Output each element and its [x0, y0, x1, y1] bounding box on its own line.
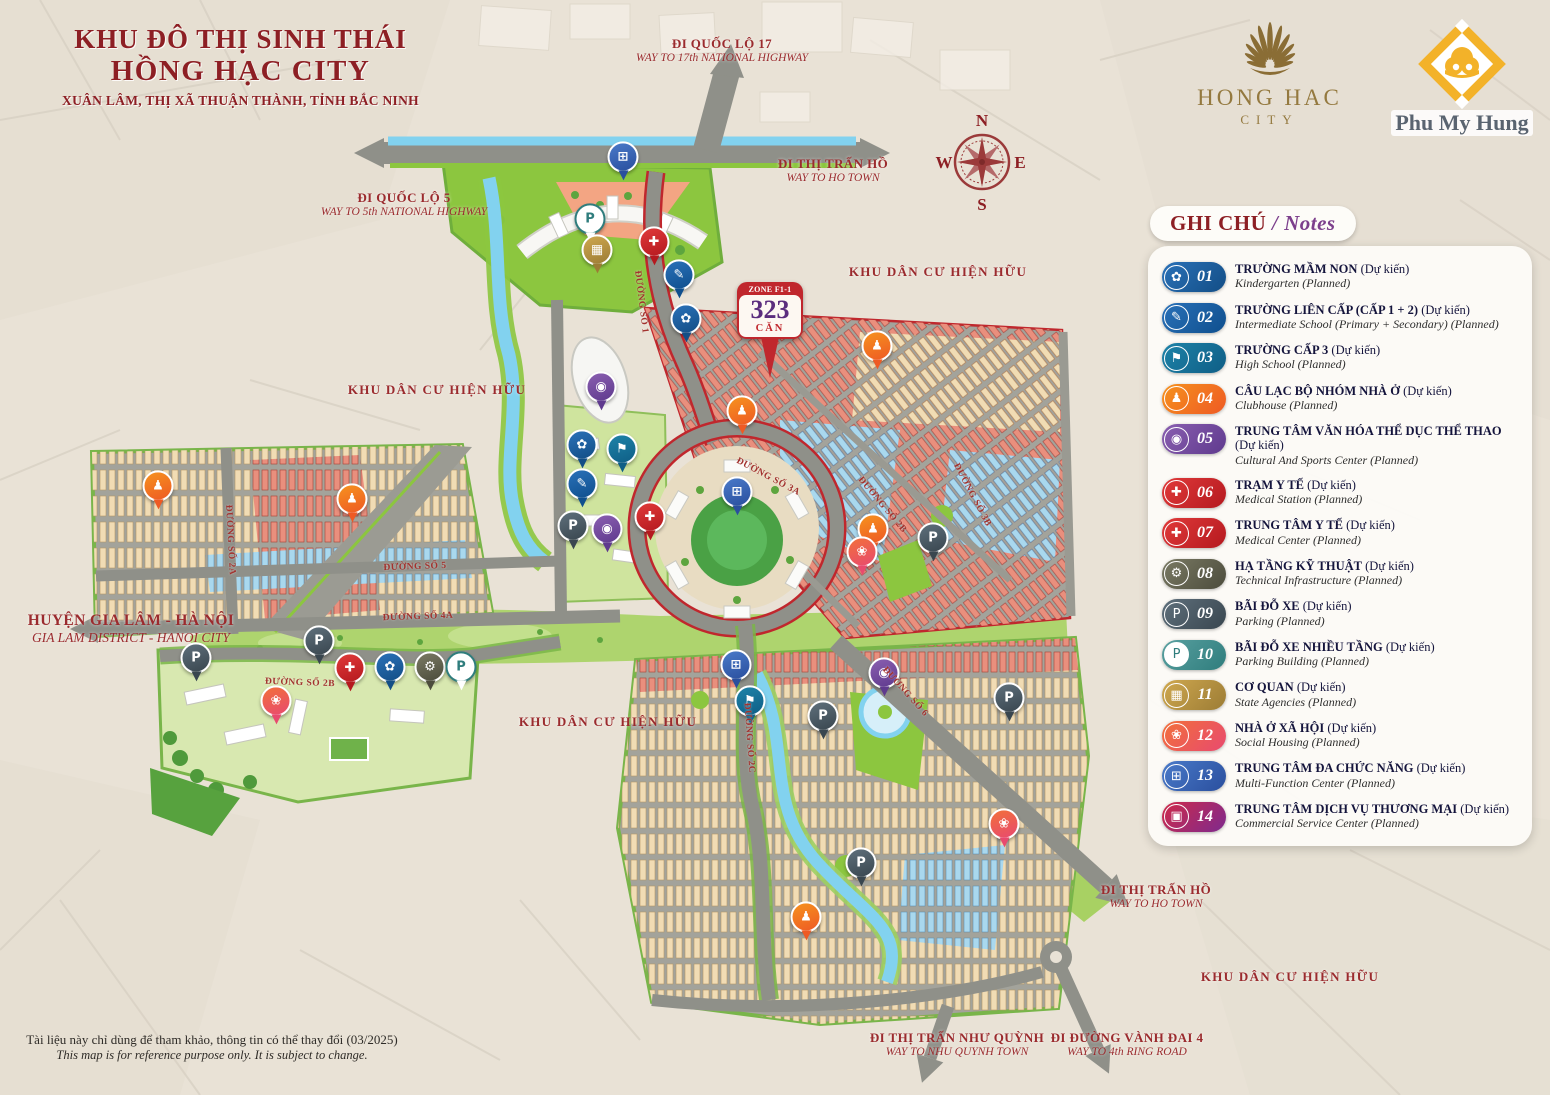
kindergarten-icon: ✿ [1164, 265, 1189, 290]
map-pin-multi-function-icon: ⊞ [608, 141, 639, 172]
legend-title: CƠ QUAN (Dự kiến) [1235, 680, 1356, 694]
map-pin-school-bag-icon: ✎ [567, 468, 598, 499]
legend-badge: ✚ 06 [1162, 478, 1226, 508]
legend-title: TRƯỜNG MẦM NON (Dự kiến) [1235, 262, 1409, 276]
title-line-3: XUÂN LÂM, THỊ XÃ THUẬN THÀNH, TỈNH BẮC N… [38, 93, 443, 109]
existing-residential-label-3: KHU DÂN CƯ HIỆN HỮU [519, 714, 697, 730]
people-icon: ♟ [1164, 386, 1189, 411]
phu-my-hung-name: Phu My Hung [1391, 110, 1532, 136]
legend-title: TRUNG TÂM VĂN HÓA THỂ DỤC THỂ THAO (Dự k… [1235, 424, 1518, 453]
school-bag-icon: ✎ [1164, 305, 1189, 330]
zone-unit-count: 323 [739, 296, 801, 323]
legend-subtitle: State Agencies (Planned) [1235, 696, 1356, 709]
map-pin-lotus-icon: ❀ [261, 685, 292, 716]
legend-subtitle: Commercial Service Center (Planned) [1235, 817, 1509, 830]
direction-label-ho-town-right: ĐI THỊ TRẤN HỒWAY TO HO TOWN [1101, 882, 1211, 910]
legend-title: TRẠM Y TẾ (Dự kiến) [1235, 478, 1362, 492]
legend-item: P 10 BÃI ĐỖ XE NHIỀU TẦNG (Dự kiến) Park… [1162, 640, 1518, 670]
lotus-icon: ❀ [1164, 723, 1189, 748]
map-pin-multi-function-icon: ⊞ [722, 476, 753, 507]
legend-title: TRUNG TÂM ĐA CHỨC NĂNG (Dự kiến) [1235, 761, 1465, 775]
map-pin-parking-icon: P [558, 510, 589, 541]
map-pin-parking-icon: P [846, 847, 877, 878]
map-pin-school-bag-icon: ✎ [664, 259, 695, 290]
legend-badge: ◉ 05 [1162, 424, 1226, 454]
direction-label-ho-town-top: ĐI THỊ TRẤN HỒWAY TO HO TOWN [778, 156, 888, 184]
legend-subtitle: Parking (Planned) [1235, 615, 1352, 628]
legend-title: TRƯỜNG LIÊN CẤP (CẤP 1 + 2) (Dự kiến) [1235, 303, 1499, 317]
medical-cross-icon: ✚ [1164, 521, 1189, 546]
legend-subtitle: Medical Station (Planned) [1235, 493, 1362, 506]
gear-icon: ⚙ [1164, 561, 1189, 586]
legend-item: P 09 BÃI ĐỖ XE (Dự kiến) Parking (Planne… [1162, 599, 1518, 629]
map-pin-parking-building-icon: P [446, 651, 477, 682]
legend-number: 04 [1189, 390, 1226, 408]
direction-label-ql17: ĐI QUỐC LỘ 17WAY TO 17th NATIONAL HIGHWA… [636, 36, 808, 64]
compass-east-label: E [1014, 153, 1025, 172]
map-pin-people-icon: ♟ [337, 483, 368, 514]
legend-number: 03 [1189, 349, 1226, 367]
map-pin-people-icon: ♟ [862, 330, 893, 361]
legend-subtitle: High School (Planned) [1235, 358, 1380, 371]
legend-number: 14 [1189, 808, 1226, 826]
map-pin-medical-cross-icon: ✚ [635, 501, 666, 532]
project-title: KHU ĐÔ THỊ SINH THÁI HỒNG HẠC CITY XUÂN … [38, 24, 443, 109]
legend-number: 12 [1189, 727, 1226, 745]
map-pin-parking-icon: P [918, 522, 949, 553]
legend-badge: ❀ 12 [1162, 721, 1226, 751]
map-pin-gear-icon: ⚙ [415, 651, 446, 682]
parking-icon: P [1164, 602, 1189, 627]
legend-item: ♟ 04 CÂU LẠC BỘ NHÓM NHÀ Ở (Dự kiến) Clu… [1162, 384, 1518, 414]
legend-subtitle: Intermediate School (Primary + Secondary… [1235, 318, 1499, 331]
zone-unit-label: CĂN [739, 323, 801, 334]
map-pin-people-icon: ♟ [791, 901, 822, 932]
existing-residential-label-4: KHU DÂN CƯ HIỆN HỮU [1201, 969, 1379, 985]
direction-label-vanh-dai-4: ĐI ĐƯỜNG VÀNH ĐAI 4WAY TO 4th RING ROAD [1051, 1030, 1204, 1058]
legend-badge: P 09 [1162, 599, 1226, 629]
parking-building-icon: P [1164, 642, 1189, 667]
map-pin-kindergarten-icon: ✿ [567, 429, 598, 460]
map-pin-people-icon: ♟ [727, 395, 758, 426]
first-aid-kit-icon: ✚ [1164, 480, 1189, 505]
legend-number: 05 [1189, 430, 1226, 448]
direction-label-nhu-quynh: ĐI THỊ TRẤN NHƯ QUỲNHWAY TO NHU QUYNH TO… [870, 1030, 1044, 1058]
disclaimer: Tài liệu này chỉ dùng để tham khảo, thôn… [26, 1032, 398, 1063]
legend-badge: P 10 [1162, 640, 1226, 670]
legend-header-vi: GHI CHÚ [1170, 211, 1266, 235]
legend-number: 07 [1189, 524, 1226, 542]
direction-label-gia-lam: HUYỆN GIA LÂM - HÀ NỘIGIA LAM DISTRICT -… [28, 612, 234, 646]
legend-badge: ▣ 14 [1162, 802, 1226, 832]
hong-hac-crest-icon [1228, 22, 1312, 78]
title-line-1: KHU ĐÔ THỊ SINH THÁI [38, 24, 443, 55]
map-pin-parking-icon: P [808, 700, 839, 731]
legend-subtitle: Parking Building (Planned) [1235, 655, 1435, 668]
compass-north-label: N [976, 111, 989, 130]
legend-title: CÂU LẠC BỘ NHÓM NHÀ Ở (Dự kiến) [1235, 384, 1452, 398]
legend-number: 13 [1189, 767, 1226, 785]
map-pin-parking-icon: P [994, 682, 1025, 713]
disclaimer-vi: Tài liệu này chỉ dùng để tham khảo, thôn… [26, 1032, 398, 1048]
legend-item: ✎ 02 TRƯỜNG LIÊN CẤP (CẤP 1 + 2) (Dự kiế… [1162, 303, 1518, 333]
existing-residential-label-2: KHU DÂN CƯ HIỆN HỮU [348, 382, 526, 398]
map-pin-multi-function-icon: ⊞ [721, 649, 752, 680]
legend-badge: ⚙ 08 [1162, 559, 1226, 589]
central-plaza [655, 446, 819, 618]
legend-number: 10 [1189, 646, 1226, 664]
legend-number: 08 [1189, 565, 1226, 583]
legend-number: 06 [1189, 484, 1226, 502]
legend-item: ✚ 07 TRUNG TÂM Y TẾ (Dự kiến) Medical Ce… [1162, 518, 1518, 548]
legend-subtitle: Multi-Function Center (Planned) [1235, 777, 1465, 790]
disclaimer-en: This map is for reference purpose only. … [26, 1048, 398, 1063]
phu-my-hung-logo: Phu My Hung [1388, 16, 1536, 136]
legend-item: ▣ 14 TRUNG TÂM DỊCH VỤ THƯƠNG MẠI (Dự ki… [1162, 802, 1518, 832]
legend-item: ⚙ 08 HẠ TẦNG KỸ THUẬT (Dự kiến) Technica… [1162, 559, 1518, 589]
legend-number: 09 [1189, 605, 1226, 623]
legend-subtitle: Kindergarten (Planned) [1235, 277, 1409, 290]
legend-badge: ✚ 07 [1162, 518, 1226, 548]
legend-title: BÃI ĐỖ XE NHIỀU TẦNG (Dự kiến) [1235, 640, 1435, 654]
legend-item: ⚑ 03 TRƯỜNG CẤP 3 (Dự kiến) High School … [1162, 343, 1518, 373]
legend-title: TRUNG TÂM Y TẾ (Dự kiến) [1235, 518, 1395, 532]
sports-icon: ◉ [1164, 427, 1189, 452]
map-pin-lotus-icon: ❀ [989, 808, 1020, 839]
legend-number: 01 [1189, 268, 1226, 286]
legend-item: ❀ 12 NHÀ Ở XÃ HỘI (Dự kiến) Social Housi… [1162, 721, 1518, 751]
map-pin-people-icon: ♟ [143, 470, 174, 501]
legend-subtitle: Medical Center (Planned) [1235, 534, 1395, 547]
multi-function-icon: ⊞ [1164, 764, 1189, 789]
map-pin-government-building-icon: ▦ [582, 234, 613, 265]
legend-title: TRƯỜNG CẤP 3 (Dự kiến) [1235, 343, 1380, 357]
shopping-cart-icon: ▣ [1164, 804, 1189, 829]
map-pin-first-aid-kit-icon: ✚ [335, 652, 366, 683]
legend-subtitle: Cultural And Sports Center (Planned) [1235, 454, 1518, 467]
master-plan-poster: KHU ĐÔ THỊ SINH THÁI HỒNG HẠC CITY XUÂN … [0, 0, 1550, 1095]
hong-hac-sub: CITY [1192, 112, 1347, 128]
hong-hac-city-logo: HONG HAC CITY [1192, 22, 1347, 128]
legend-number: 02 [1189, 309, 1226, 327]
legend-badge: ▦ 11 [1162, 680, 1226, 710]
compass-west-label: W [936, 153, 953, 172]
direction-label-ql5: ĐI QUỐC LỘ 5WAY TO 5th NATIONAL HIGHWAY [321, 190, 487, 218]
legend-subtitle: Technical Infrastructure (Planned) [1235, 574, 1414, 587]
existing-residential-label-1: KHU DÂN CƯ HIỆN HỮU [849, 264, 1027, 280]
graduation-cap-icon: ⚑ [1164, 346, 1189, 371]
legend-item: ◉ 05 TRUNG TÂM VĂN HÓA THỂ DỤC THỂ THAO … [1162, 424, 1518, 467]
map-pin-parking-icon: P [304, 625, 335, 656]
map-pin-kindergarten-icon: ✿ [375, 651, 406, 682]
legend-title: BÃI ĐỖ XE (Dự kiến) [1235, 599, 1352, 613]
legend-badge: ✿ 01 [1162, 262, 1226, 292]
map-pin-sports-icon: ◉ [586, 371, 617, 402]
legend-item: ▦ 11 CƠ QUAN (Dự kiến) State Agencies (P… [1162, 680, 1518, 710]
map-pin-parking-building-icon: P [575, 203, 606, 234]
legend-header: GHI CHÚ / Notes [1150, 206, 1356, 241]
phu-my-hung-diamond-icon [1414, 16, 1510, 112]
legend-panel: GHI CHÚ / Notes ✿ 01 TRƯỜNG MẦM NON (Dự … [1148, 246, 1532, 846]
legend-item: ✿ 01 TRƯỜNG MẦM NON (Dự kiến) Kindergart… [1162, 262, 1518, 292]
legend-badge: ⚑ 03 [1162, 343, 1226, 373]
zone-badge-pointer [761, 337, 779, 378]
map-pin-first-aid-kit-icon: ✚ [639, 226, 670, 257]
legend-subtitle: Social Housing (Planned) [1235, 736, 1376, 749]
legend-badge: ♟ 04 [1162, 384, 1226, 414]
map-pin-graduation-cap-icon: ⚑ [607, 433, 638, 464]
government-building-icon: ▦ [1164, 683, 1189, 708]
legend-number: 11 [1189, 686, 1226, 704]
hong-hac-name: HONG HAC [1192, 85, 1347, 111]
map-pin-kindergarten-icon: ✿ [671, 303, 702, 334]
compass-rose-icon: N E S W [934, 104, 1030, 222]
map-pin-parking-icon: P [181, 642, 212, 673]
legend-title: NHÀ Ở XÃ HỘI (Dự kiến) [1235, 721, 1376, 735]
title-line-2: HỒNG HẠC CITY [38, 55, 443, 88]
legend-title: HẠ TẦNG KỸ THUẬT (Dự kiến) [1235, 559, 1414, 573]
legend-item: ✚ 06 TRẠM Y TẾ (Dự kiến) Medical Station… [1162, 478, 1518, 508]
zone-f1-badge: ZONE F1-1 323 CĂN [737, 282, 803, 339]
legend-list: ✿ 01 TRƯỜNG MẦM NON (Dự kiến) Kindergart… [1162, 262, 1518, 832]
map-pin-sports-icon: ◉ [592, 513, 623, 544]
zone-name: ZONE F1-1 [739, 284, 801, 295]
legend-title: TRUNG TÂM DỊCH VỤ THƯƠNG MẠI (Dự kiến) [1235, 802, 1509, 816]
legend-badge: ⊞ 13 [1162, 761, 1226, 791]
legend-subtitle: Clubhouse (Planned) [1235, 399, 1452, 412]
legend-item: ⊞ 13 TRUNG TÂM ĐA CHỨC NĂNG (Dự kiến) Mu… [1162, 761, 1518, 791]
map-pin-lotus-icon: ❀ [847, 536, 878, 567]
legend-header-en: / Notes [1266, 211, 1335, 235]
legend-badge: ✎ 02 [1162, 303, 1226, 333]
compass-south-label: S [977, 195, 986, 214]
